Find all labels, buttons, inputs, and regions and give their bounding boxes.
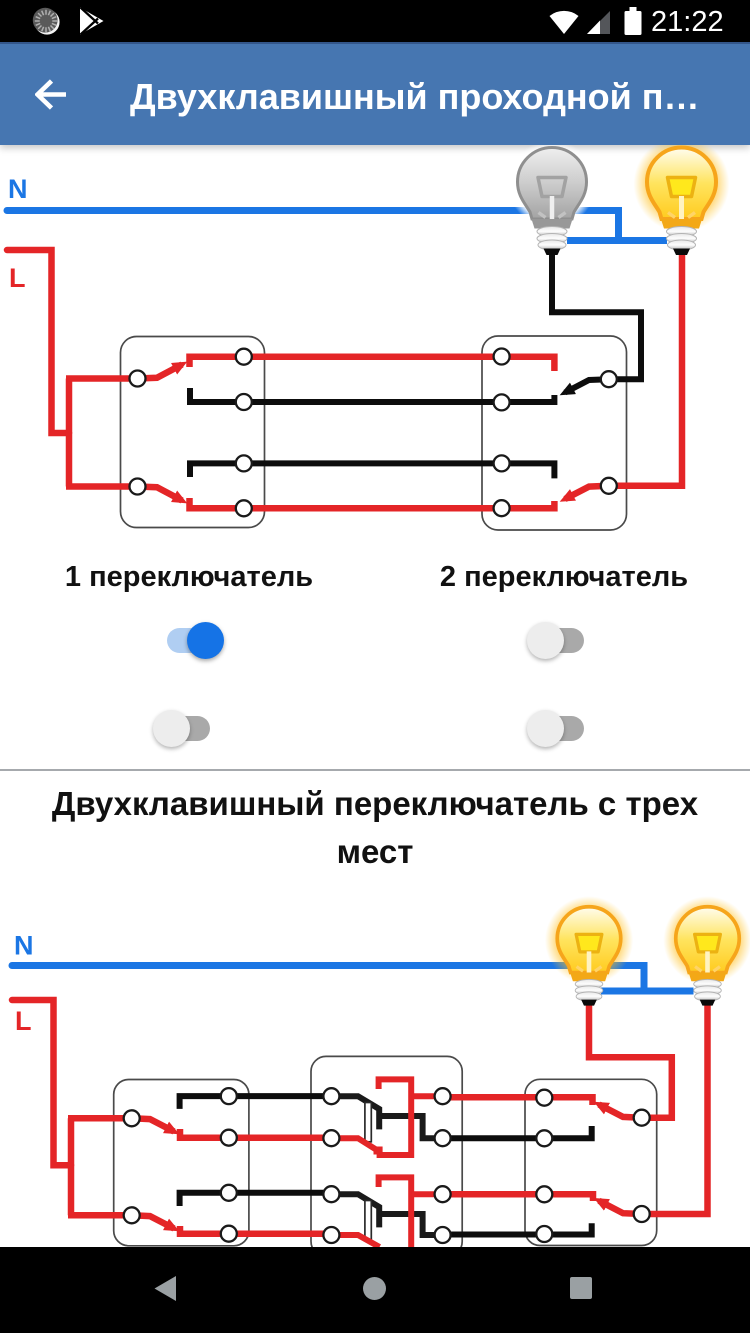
svg-text:L: L [15,1006,32,1036]
svg-text:N: N [8,174,28,204]
svg-text:N: N [14,931,34,961]
svg-text:L: L [9,263,26,293]
